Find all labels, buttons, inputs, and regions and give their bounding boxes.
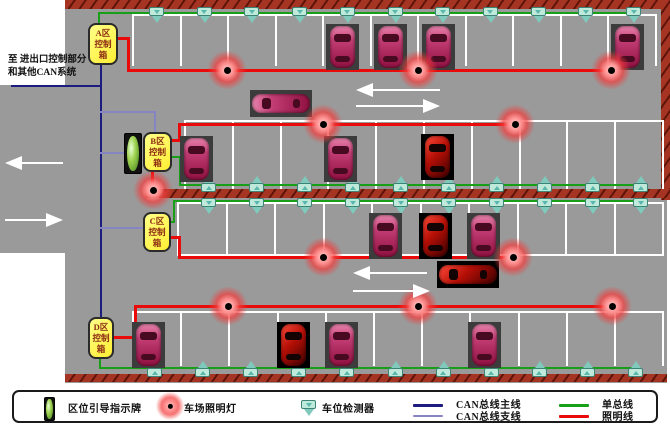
detector-beam — [534, 16, 544, 23]
parking-space-divider — [614, 120, 616, 189]
detector-glyph — [638, 186, 644, 190]
detector-body — [197, 7, 212, 16]
detector-body — [243, 368, 258, 377]
lighting-wire — [178, 123, 517, 126]
detector-body — [537, 183, 552, 192]
legend-line-swatch — [559, 404, 589, 407]
arrow-head — [5, 156, 22, 170]
detector-glyph — [638, 201, 644, 205]
detector-glyph — [306, 403, 312, 407]
parked-car — [468, 322, 501, 368]
parking-space-divider — [180, 14, 182, 66]
detector-beam — [295, 16, 305, 23]
detector-glyph — [633, 371, 639, 375]
parking-space-divider — [662, 202, 664, 256]
detector-beam — [204, 207, 214, 214]
detector-glyph — [590, 186, 596, 190]
parking-detector-icon — [296, 196, 314, 218]
detector-body — [628, 368, 643, 377]
detector-body — [297, 198, 312, 207]
detector-body — [201, 183, 216, 192]
car-windshield — [619, 34, 636, 42]
parked-car — [326, 24, 359, 70]
parking-detector-icon — [291, 5, 309, 27]
parking-detector-icon — [531, 357, 549, 379]
detector-glyph — [344, 10, 350, 14]
sports-car — [277, 322, 310, 368]
car-windshield — [475, 223, 492, 231]
detector-beam — [396, 176, 406, 183]
detector-glyph — [302, 201, 308, 205]
car-rear-window — [293, 99, 300, 108]
detector-beam — [588, 207, 598, 214]
detector-body — [291, 368, 306, 377]
detector-beam — [391, 16, 401, 23]
detector-body — [626, 7, 641, 16]
detector-body — [388, 7, 403, 16]
parking-detector-icon — [530, 5, 548, 27]
parking-detector-icon — [344, 196, 362, 218]
detector-beam — [348, 207, 358, 214]
parking-space-divider — [275, 14, 277, 66]
parking-space-divider — [465, 14, 467, 66]
detector-glyph — [446, 201, 452, 205]
detector-body — [301, 400, 316, 409]
control-box-c: C区控制箱 — [143, 212, 171, 252]
parked-car — [180, 136, 213, 182]
car-rear-window — [378, 245, 393, 251]
legend-lamp-icon — [156, 392, 185, 421]
detector-beam — [629, 16, 639, 23]
car-rear-window — [383, 56, 398, 62]
detector-body — [578, 7, 593, 16]
single-bus-wire — [99, 367, 642, 370]
can-main-wire — [11, 85, 103, 88]
detector-glyph — [542, 186, 548, 190]
detector-body — [393, 198, 408, 207]
car-windshield — [333, 332, 350, 340]
detector-body — [297, 183, 312, 192]
parking-detector-icon — [243, 5, 261, 27]
parking-detector-icon — [242, 357, 260, 379]
detector-glyph — [583, 10, 589, 14]
detector-glyph — [398, 201, 404, 205]
parked-car — [325, 322, 358, 368]
detector-glyph — [488, 371, 494, 375]
detector-body — [249, 198, 264, 207]
detector-beam — [439, 361, 449, 368]
detector-beam — [588, 176, 598, 183]
car-windshield — [332, 146, 349, 154]
detector-glyph — [201, 10, 207, 14]
parking-detector-icon — [536, 196, 554, 218]
detector-glyph — [631, 10, 637, 14]
car-windshield — [377, 223, 394, 231]
sports-car — [421, 134, 454, 180]
detector-glyph — [254, 186, 260, 190]
detector-glyph — [494, 186, 500, 190]
lane-direction-arrow — [353, 284, 430, 298]
detector-beam — [304, 409, 314, 416]
arrow-shaft — [356, 105, 425, 108]
car-rear-window — [286, 354, 301, 360]
detector-glyph — [440, 371, 446, 375]
parking-space-divider — [232, 120, 234, 189]
detector-beam — [247, 16, 257, 23]
parking-detector-icon — [387, 357, 405, 379]
detector-glyph — [344, 371, 350, 375]
detector-beam — [152, 16, 162, 23]
car-windshield — [285, 332, 302, 340]
parking-detector-icon — [632, 172, 650, 194]
parking-lamp-icon — [133, 170, 173, 210]
parking-lamp-icon — [303, 237, 343, 277]
detector-body — [388, 368, 403, 377]
car-rear-window — [476, 245, 491, 251]
detector-glyph — [248, 371, 254, 375]
car-windshield — [334, 34, 351, 42]
detector-glyph — [249, 10, 255, 14]
detector-body — [537, 198, 552, 207]
car-rear-window — [334, 354, 349, 360]
detector-body — [441, 183, 456, 192]
detector-glyph — [590, 201, 596, 205]
detector-glyph — [206, 201, 212, 205]
legend-label: 车位检测器 — [322, 400, 375, 415]
control-box-d: D区控制箱 — [88, 317, 114, 359]
parking-detector-icon — [296, 172, 314, 194]
lane-direction-arrow — [5, 213, 63, 227]
parked-car — [132, 322, 165, 368]
car-windshield — [188, 146, 205, 154]
detector-body — [393, 183, 408, 192]
detector-glyph — [446, 186, 452, 190]
moving-car — [250, 90, 312, 117]
parking-detector-icon — [577, 5, 595, 27]
parking-space-divider — [560, 14, 562, 66]
control-box-a: A区控制箱 — [88, 23, 118, 65]
detector-body — [435, 7, 450, 16]
detector-beam — [540, 207, 550, 214]
car-rear-window — [477, 354, 492, 360]
control-box-label: C区控制箱 — [148, 216, 167, 249]
parking-guidance-system-diagram: A区控制箱B区控制箱C区控制箱D区控制箱 至 进出口控制部分 和其他CAN系统 … — [0, 0, 670, 427]
detector-glyph — [206, 186, 212, 190]
car-windshield — [429, 144, 446, 152]
parking-space-divider — [662, 120, 664, 189]
lane-direction-arrow — [353, 266, 427, 280]
parking-detector-icon — [392, 172, 410, 194]
parking-lamp-icon — [207, 50, 247, 90]
detector-body — [484, 368, 499, 377]
parking-detector-icon — [536, 172, 554, 194]
car-body — [252, 94, 310, 113]
detector-glyph — [200, 371, 206, 375]
detector-body — [483, 7, 498, 16]
detector-glyph — [350, 201, 356, 205]
detector-body — [292, 7, 307, 16]
control-box-label: D区控制箱 — [92, 322, 111, 355]
parking-space-divider — [565, 202, 567, 256]
parking-space-divider — [180, 311, 182, 366]
can-branch-wire — [100, 227, 144, 229]
car-rear-window — [480, 270, 487, 279]
car-windshield — [449, 269, 458, 280]
detector-glyph — [535, 10, 541, 14]
arrow-shaft — [5, 219, 48, 222]
parking-detector-icon — [196, 5, 214, 27]
parking-space-divider — [375, 120, 377, 189]
detector-glyph — [494, 201, 500, 205]
parking-detector-icon — [584, 172, 602, 194]
parking-detector-icon — [200, 196, 218, 218]
detector-glyph — [254, 201, 260, 205]
detector-glyph — [392, 371, 398, 375]
detector-body — [585, 198, 600, 207]
detector-beam — [486, 16, 496, 23]
detector-body — [441, 198, 456, 207]
legend-line-swatch — [559, 415, 589, 418]
parking-space-divider — [512, 14, 514, 66]
legend-line-swatch — [413, 404, 443, 407]
detector-body — [532, 368, 547, 377]
detector-body — [249, 183, 264, 192]
car-body — [439, 265, 497, 284]
parking-space-divider — [614, 202, 616, 256]
arrow-head — [423, 99, 440, 113]
car-windshield — [476, 332, 493, 340]
parking-lamp-icon — [208, 286, 248, 326]
lighting-wire — [127, 69, 613, 72]
detector-beam — [391, 361, 401, 368]
legend-line-swatch — [413, 415, 443, 417]
detector-beam — [540, 176, 550, 183]
parking-space-divider — [132, 14, 134, 66]
parking-detector-icon — [584, 196, 602, 218]
detector-beam — [343, 16, 353, 23]
car-windshield — [430, 34, 447, 42]
arrow-head — [46, 213, 63, 227]
detector-body — [201, 198, 216, 207]
detector-glyph — [398, 186, 404, 190]
car-windshield — [262, 98, 271, 109]
detector-beam — [535, 361, 545, 368]
detector-body — [149, 7, 164, 16]
detector-glyph — [350, 186, 356, 190]
control-box-label: B区控制箱 — [148, 136, 167, 169]
car-windshield — [140, 332, 157, 340]
detector-glyph — [152, 371, 158, 375]
parking-space-divider — [518, 311, 520, 366]
detector-beam — [252, 176, 262, 183]
parking-space-divider — [274, 202, 276, 256]
legend-label: 区位引导指示牌 — [68, 400, 142, 415]
detector-body — [633, 183, 648, 192]
legend-label: CAN总线支线 — [456, 408, 521, 423]
lane-direction-arrow — [5, 156, 63, 170]
detector-body — [585, 183, 600, 192]
parking-lamp-icon — [495, 104, 535, 144]
can-annotation-line1: 至 进出口控制部分 — [8, 54, 86, 66]
detector-beam — [438, 16, 448, 23]
parking-lamp-icon — [493, 237, 533, 277]
sports-car — [419, 213, 452, 259]
parking-space-divider — [370, 14, 372, 66]
detector-body — [244, 7, 259, 16]
parking-detector-icon — [194, 357, 212, 379]
detector-body — [436, 368, 451, 377]
detector-beam — [583, 361, 593, 368]
parking-space-divider — [280, 120, 282, 189]
arrow-head — [353, 266, 370, 280]
detector-glyph — [154, 10, 160, 14]
detector-beam — [636, 207, 646, 214]
parking-space-divider — [471, 120, 473, 189]
detector-body — [489, 198, 504, 207]
lane-direction-arrow — [356, 83, 440, 97]
arrow-shaft — [371, 89, 440, 92]
detector-beam — [252, 207, 262, 214]
parking-detector-icon — [148, 5, 166, 27]
zone-guidance-sign-icon — [124, 133, 142, 174]
car-rear-window — [430, 166, 445, 172]
detector-body — [345, 198, 360, 207]
parking-space-divider — [566, 311, 568, 366]
detector-body — [489, 183, 504, 192]
arrow-shaft — [20, 162, 63, 165]
parking-space-divider — [655, 14, 657, 66]
can-annotation-line2: 和其他CAN系统 — [8, 67, 76, 79]
detector-glyph — [440, 10, 446, 14]
detector-body — [339, 368, 354, 377]
detector-glyph — [536, 371, 542, 375]
can-branch-wire — [100, 152, 125, 154]
moving-car — [437, 261, 499, 288]
parking-detector-icon — [300, 398, 318, 420]
car-rear-window — [141, 354, 156, 360]
detector-glyph — [302, 186, 308, 190]
detector-beam — [198, 361, 208, 368]
detector-body — [531, 7, 546, 16]
parking-space-divider — [662, 311, 664, 366]
car-rear-window — [189, 168, 204, 174]
lighting-wire — [178, 256, 515, 259]
car-rear-window — [333, 168, 348, 174]
arrow-head — [413, 284, 430, 298]
detector-beam — [636, 176, 646, 183]
parking-space-divider — [566, 120, 568, 189]
can-main-wire — [100, 63, 103, 320]
car-rear-window — [335, 56, 350, 62]
detector-body — [195, 368, 210, 377]
detector-glyph — [297, 10, 303, 14]
single-bus-wire — [173, 200, 176, 224]
parking-detector-icon — [248, 196, 266, 218]
detector-body — [147, 368, 162, 377]
control-box-b: B区控制箱 — [143, 132, 172, 172]
legend-box: 区位引导指示牌车场照明灯车位检测器CAN总线主线CAN总线支线单总线照明线 — [12, 390, 658, 423]
parking-space-divider — [322, 14, 324, 66]
parking-lamp-icon — [303, 104, 343, 144]
parking-space-divider — [226, 202, 228, 256]
parking-lamp-icon — [592, 286, 632, 326]
parking-detector-icon — [627, 357, 645, 379]
detector-beam — [631, 361, 641, 368]
parking-detector-icon — [488, 172, 506, 194]
parking-detector-icon — [579, 357, 597, 379]
can-branch-wire — [154, 111, 156, 134]
parked-car — [369, 213, 402, 259]
parking-detector-icon — [482, 5, 500, 27]
detector-glyph — [296, 371, 302, 375]
detector-glyph — [584, 371, 590, 375]
parking-detector-icon — [248, 172, 266, 194]
parking-space-divider — [373, 311, 375, 366]
can-branch-wire — [100, 111, 156, 113]
detector-body — [340, 7, 355, 16]
arrow-shaft — [368, 272, 427, 275]
car-windshield — [382, 34, 399, 42]
parking-detector-icon — [435, 357, 453, 379]
detector-beam — [492, 176, 502, 183]
parking-detector-icon — [632, 196, 650, 218]
car-windshield — [427, 223, 444, 231]
legend-label: 照明线 — [602, 408, 634, 423]
legend-label: 车场照明灯 — [184, 400, 237, 415]
detector-beam — [200, 16, 210, 23]
control-box-label: A区控制箱 — [94, 28, 113, 61]
detector-glyph — [542, 201, 548, 205]
legend-sign-icon — [44, 397, 55, 421]
lane-direction-arrow — [356, 99, 440, 113]
detector-glyph — [392, 10, 398, 14]
lighting-wire — [127, 37, 130, 72]
car-rear-window — [428, 245, 443, 251]
arrow-shaft — [353, 290, 415, 293]
detector-body — [633, 198, 648, 207]
parking-lamp-icon — [591, 50, 631, 90]
arrow-head — [356, 83, 373, 97]
detector-beam — [300, 176, 310, 183]
detector-body — [580, 368, 595, 377]
detector-glyph — [487, 10, 493, 14]
detector-beam — [300, 207, 310, 214]
detector-beam — [246, 361, 256, 368]
detector-beam — [581, 16, 591, 23]
single-bus-wire — [98, 12, 640, 15]
lighting-wire — [134, 305, 614, 308]
detector-body — [345, 183, 360, 192]
